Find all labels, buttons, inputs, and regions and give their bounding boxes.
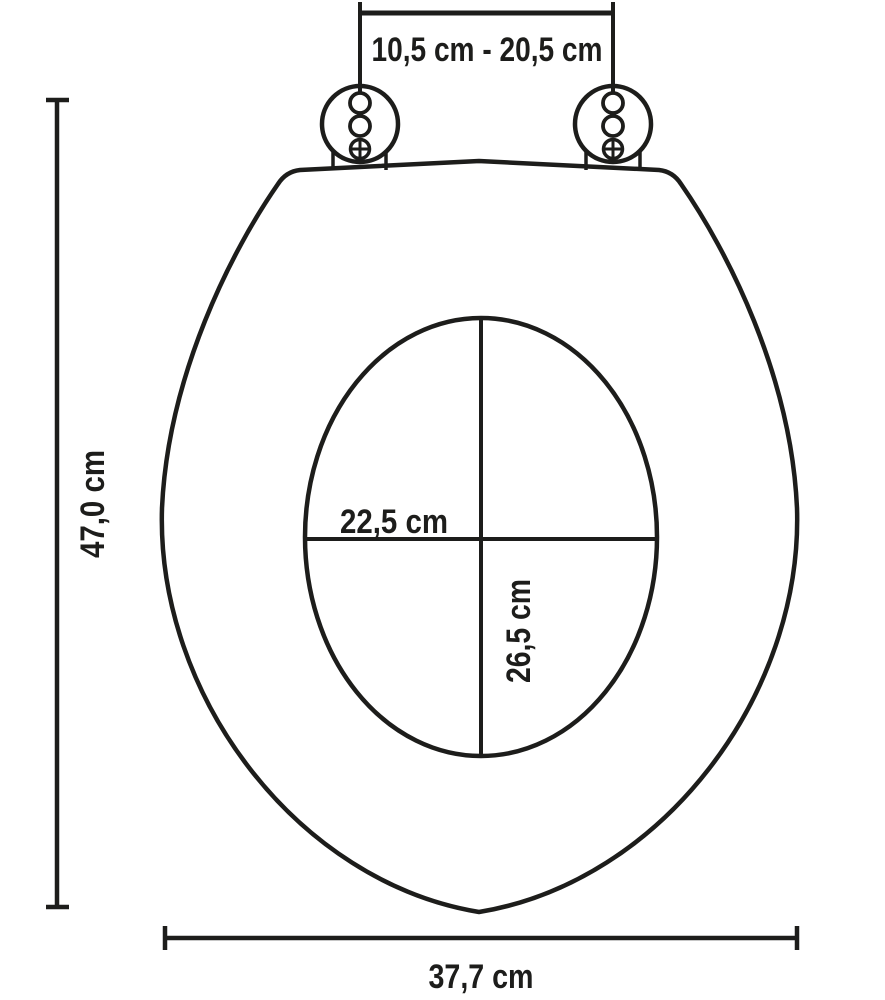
diagram-canvas: 22,5 cm 26,5 cm 10,5 cm - 20,5 cm 47,0	[0, 0, 885, 1000]
hinge-left	[322, 2, 398, 170]
overall-length-label: 47,0 cm	[74, 450, 112, 558]
inner-width-label: 22,5 cm	[340, 503, 448, 541]
inner-length-label: 26,5 cm	[500, 579, 538, 683]
hinge-right-pin-middle	[603, 116, 623, 136]
hinge-right	[575, 2, 651, 170]
hinge-right-pin-top	[603, 93, 623, 113]
overall-width-dimension: 37,7 cm	[165, 926, 797, 996]
hinge-left-pin-top	[350, 93, 370, 113]
hinge-left-pin-middle	[350, 116, 370, 136]
hinge-spacing-label: 10,5 cm - 20,5 cm	[372, 31, 603, 69]
toilet-seat-dimension-diagram: 22,5 cm 26,5 cm 10,5 cm - 20,5 cm 47,0	[0, 0, 885, 1000]
overall-width-label: 37,7 cm	[429, 958, 534, 996]
overall-length-dimension: 47,0 cm	[46, 100, 112, 907]
hinge-spacing-dimension: 10,5 cm - 20,5 cm	[361, 13, 612, 69]
